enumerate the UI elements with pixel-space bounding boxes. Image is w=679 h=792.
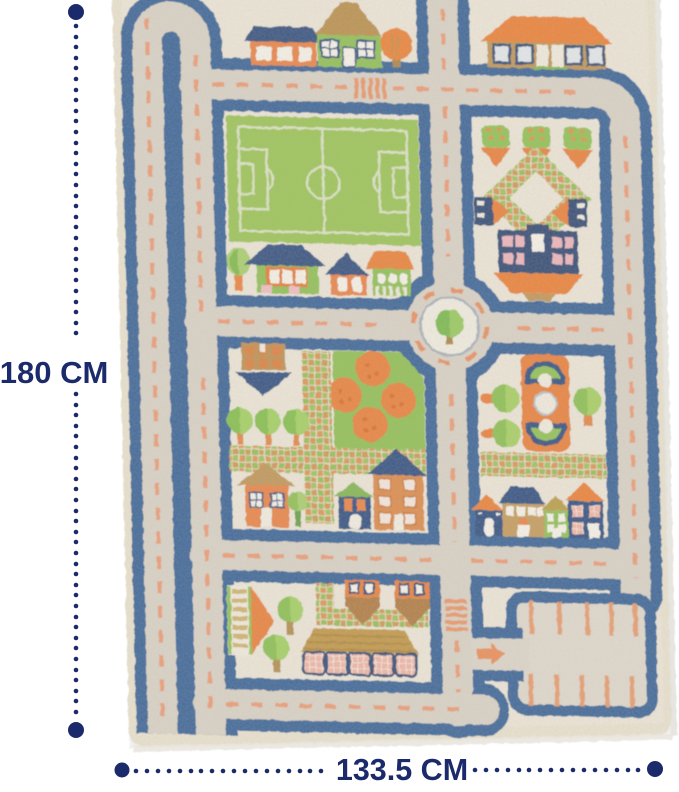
svg-text:180 CM: 180 CM (0, 355, 108, 390)
svg-text:133.5 CM: 133.5 CM (336, 753, 468, 787)
